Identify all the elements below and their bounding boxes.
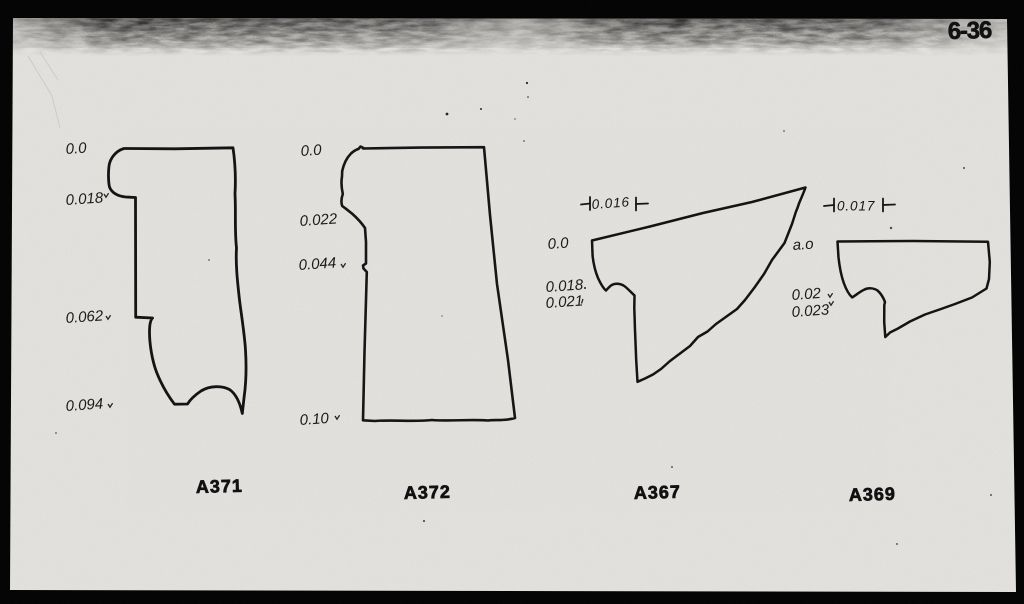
svg-text:0.022: 0.022 bbox=[299, 210, 338, 230]
svg-text:6-36: 6-36 bbox=[947, 17, 992, 45]
svg-text:A372: A372 bbox=[404, 482, 452, 503]
svg-text:0.062: 0.062 bbox=[65, 307, 104, 327]
svg-text:0.023: 0.023 bbox=[791, 301, 830, 321]
svg-text:0.10: 0.10 bbox=[299, 410, 330, 429]
svg-text:0.018: 0.018 bbox=[65, 189, 104, 209]
svg-text:0.0: 0.0 bbox=[300, 142, 323, 160]
svg-text:a.o: a.o bbox=[792, 236, 814, 254]
svg-text:0.0: 0.0 bbox=[65, 140, 88, 158]
svg-text:A369: A369 bbox=[849, 484, 897, 505]
svg-text:0.016: 0.016 bbox=[591, 194, 630, 212]
svg-text:A371: A371 bbox=[196, 476, 244, 497]
svg-text:0.044: 0.044 bbox=[298, 254, 337, 274]
svg-text:0.021: 0.021 bbox=[545, 292, 584, 312]
svg-text:0.094: 0.094 bbox=[65, 395, 104, 415]
svg-text:0.017: 0.017 bbox=[837, 199, 875, 214]
svg-text:0.02: 0.02 bbox=[791, 285, 822, 304]
svg-text:A367: A367 bbox=[634, 482, 682, 503]
svg-text:0.0: 0.0 bbox=[547, 235, 570, 253]
